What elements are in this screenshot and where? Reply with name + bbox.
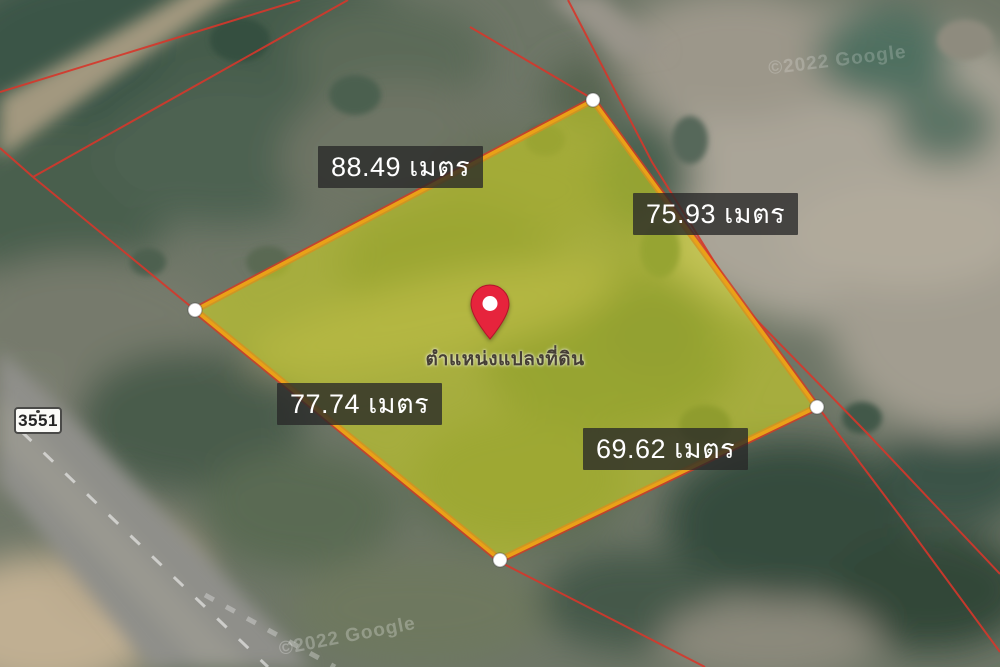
route-shield: 3551	[14, 407, 62, 434]
parcel-vertex-dot	[586, 93, 600, 107]
location-pin[interactable]	[470, 284, 510, 342]
measurement-label-bottom: 69.62 เมตร	[583, 428, 748, 470]
pin-caption: ตำแหน่งแปลงที่ดิน	[415, 344, 595, 374]
measurement-label-right: 75.93 เมตร	[633, 193, 798, 235]
parcel-vertex-dot	[188, 303, 202, 317]
route-shield-number: 3551	[18, 411, 58, 431]
parcel-vertex-dot	[493, 553, 507, 567]
satellite-map[interactable]: 88.49 เมตร 75.93 เมตร 77.74 เมตร 69.62 เ…	[0, 0, 1000, 667]
parcel-vertex-dot	[810, 400, 824, 414]
location-pin-icon	[470, 284, 510, 342]
measurement-label-left: 77.74 เมตร	[277, 383, 442, 425]
route-shield-emblem-icon	[36, 410, 40, 413]
measurement-label-top: 88.49 เมตร	[318, 146, 483, 188]
